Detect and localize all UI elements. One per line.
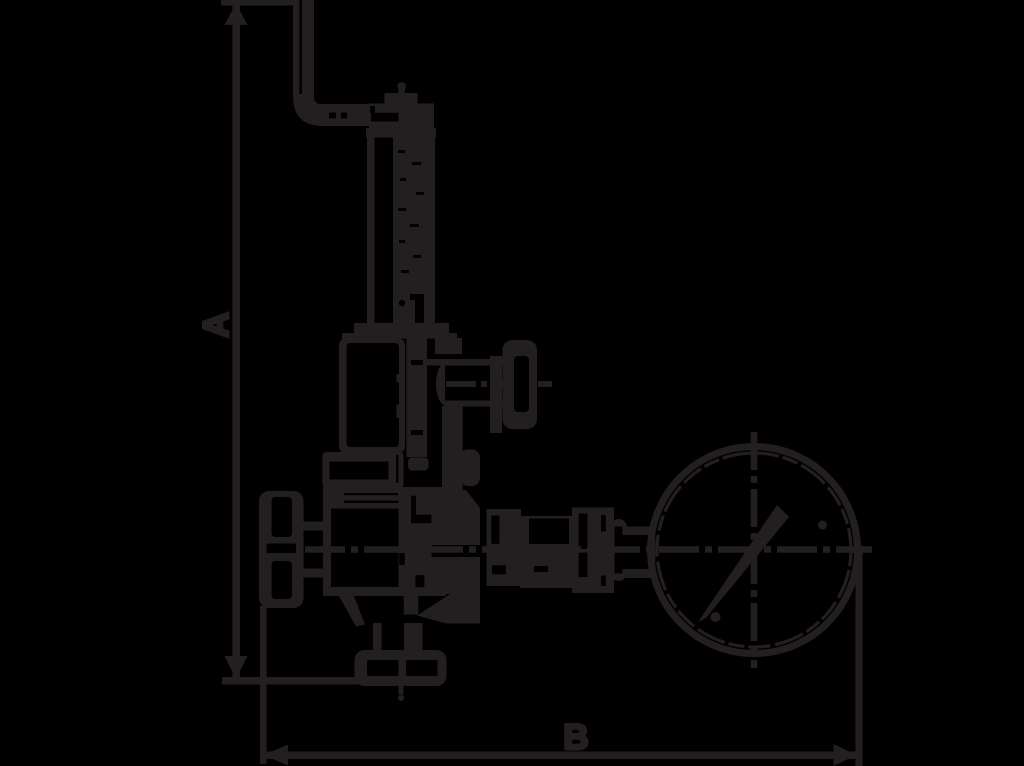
svg-text:B: B bbox=[563, 718, 588, 757]
svg-text:A: A bbox=[197, 312, 236, 337]
